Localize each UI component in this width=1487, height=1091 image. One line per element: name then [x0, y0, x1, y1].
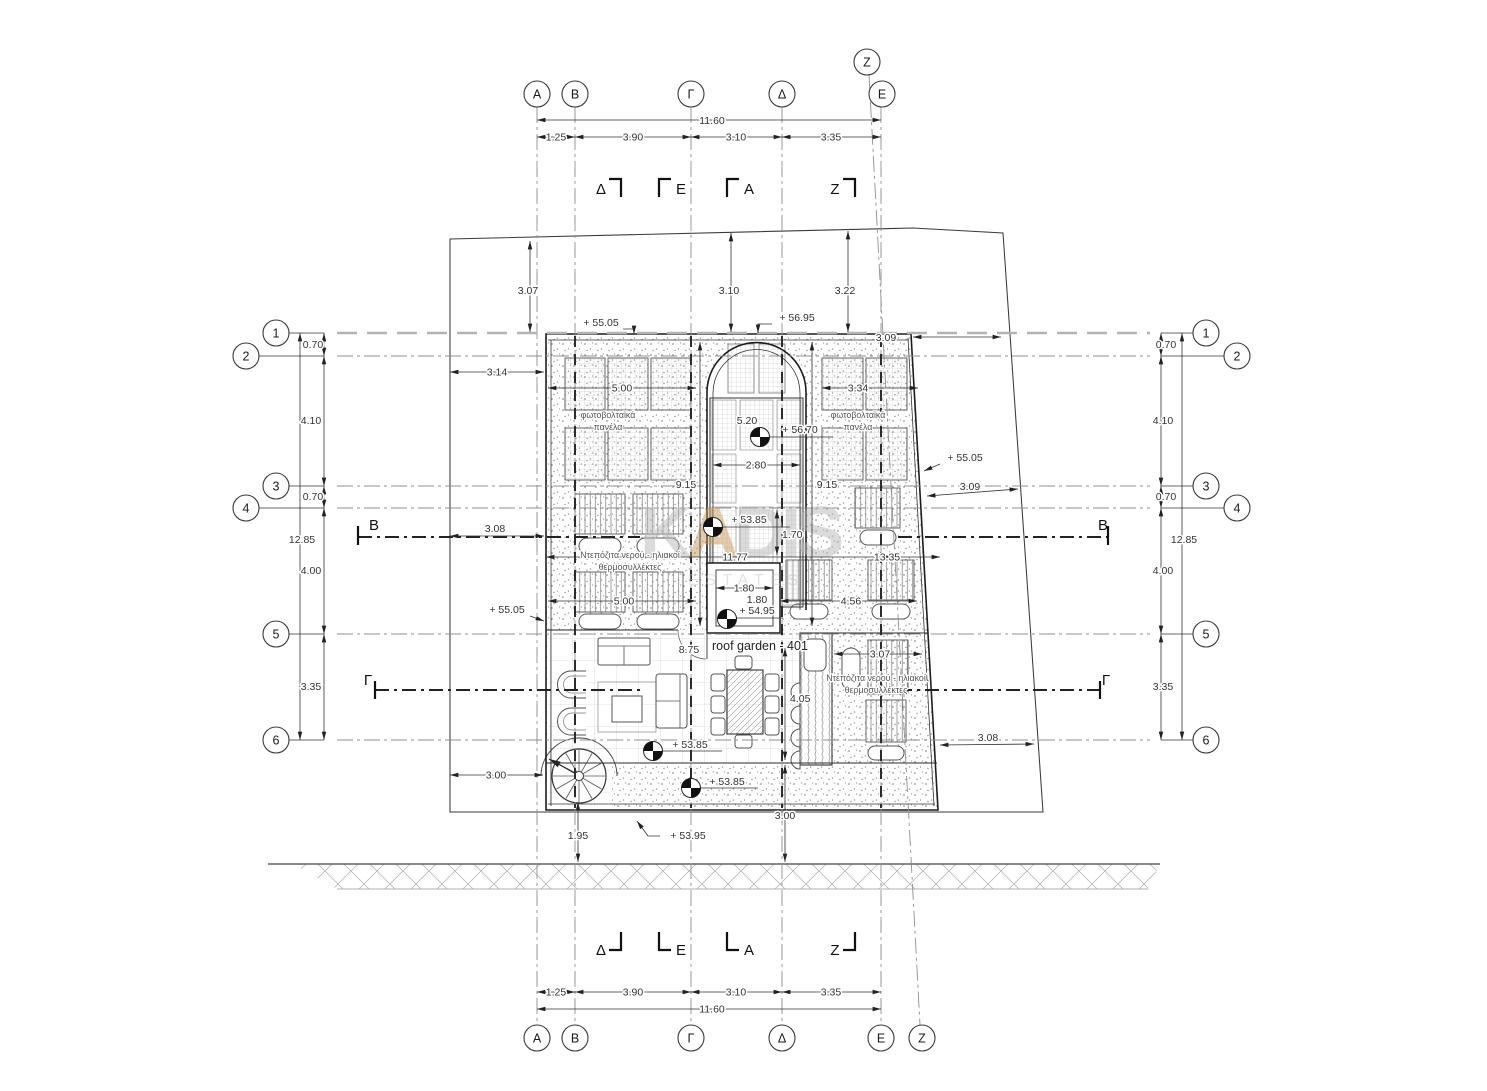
svg-text:Β: Β — [571, 1032, 579, 1046]
svg-text:5.20: 5.20 — [737, 415, 758, 427]
svg-text:2: 2 — [1234, 350, 1241, 364]
dim-bottom-segments: 1.25 3.90 3.10 3.35 — [537, 987, 881, 999]
svg-text:Ζ: Ζ — [830, 942, 839, 959]
level-marker-icon — [682, 779, 701, 798]
svg-text:+ 55.05: + 55.05 — [583, 317, 618, 329]
svg-text:+ 53.85: + 53.85 — [709, 776, 744, 788]
svg-text:3: 3 — [1203, 480, 1210, 494]
svg-text:3.10: 3.10 — [719, 285, 740, 297]
svg-text:13.35: 13.35 — [874, 552, 900, 564]
svg-text:3.35: 3.35 — [1153, 681, 1174, 693]
svg-text:+ 53.95: + 53.95 — [670, 830, 705, 842]
svg-text:πανέλα: πανέλα — [844, 422, 873, 432]
svg-text:4.10: 4.10 — [301, 415, 322, 427]
svg-text:+ 56.95: + 56.95 — [779, 312, 814, 324]
svg-text:1.25: 1.25 — [546, 987, 567, 999]
level-marker-icon — [704, 518, 723, 537]
tanks-label-right: Ντεπόζιτα νερού - ηλιακοί — [826, 673, 926, 683]
svg-text:11.60: 11.60 — [699, 115, 725, 127]
svg-text:2: 2 — [243, 350, 250, 364]
svg-text:5.00: 5.00 — [614, 596, 635, 608]
dim-top-total: 11.60 — [537, 115, 881, 127]
svg-text:4.05: 4.05 — [790, 693, 811, 705]
svg-text:Γ: Γ — [364, 672, 372, 689]
dim-right-chain: 0.70 4.10 0.70 4.00 3.35 12.85 — [1153, 333, 1198, 740]
svg-text:4.00: 4.00 — [301, 565, 322, 577]
svg-text:πανέλα: πανέλα — [594, 422, 623, 432]
svg-text:1: 1 — [1203, 327, 1210, 341]
svg-text:Ε: Ε — [676, 181, 686, 198]
svg-text:3.07: 3.07 — [518, 285, 539, 297]
svg-text:3.00: 3.00 — [775, 810, 796, 822]
svg-text:0.70: 0.70 — [303, 339, 324, 351]
svg-text:2.80: 2.80 — [746, 460, 767, 472]
level-marker-icon — [718, 610, 737, 629]
svg-text:+ 56.70: + 56.70 — [782, 424, 817, 436]
svg-text:1.80: 1.80 — [734, 583, 755, 595]
svg-text:3.08: 3.08 — [485, 523, 506, 535]
svg-text:Γ: Γ — [688, 1032, 695, 1046]
svg-text:Δ: Δ — [778, 88, 786, 102]
svg-text:9.15: 9.15 — [676, 479, 697, 491]
svg-text:1.70: 1.70 — [782, 529, 803, 541]
svg-text:0.70: 0.70 — [1156, 491, 1177, 503]
tanks-label-left: Ντεπόζιτα νερού - ηλιακοί — [580, 550, 680, 560]
svg-text:3.22: 3.22 — [835, 285, 856, 297]
svg-text:3.35: 3.35 — [301, 681, 322, 693]
svg-text:3.10: 3.10 — [726, 132, 747, 144]
svg-text:3.35: 3.35 — [821, 987, 842, 999]
svg-text:1.95: 1.95 — [568, 830, 589, 842]
pv-label-right: φωτοβολταϊκά — [831, 410, 886, 420]
svg-text:3.90: 3.90 — [623, 987, 644, 999]
svg-text:+ 55.05: + 55.05 — [489, 604, 524, 616]
roof-plan-drawing: KADIS ESTATES 11.60 1.25 3.90 3.10 3.35 … — [0, 0, 1487, 1091]
svg-text:3.09: 3.09 — [876, 332, 897, 344]
floor-plan-canvas: KADIS ESTATES 11.60 1.25 3.90 3.10 3.35 … — [0, 0, 1487, 1091]
level-marker-icon — [644, 742, 663, 761]
svg-text:Δ: Δ — [778, 1032, 786, 1046]
svg-text:Δ: Δ — [596, 942, 606, 959]
svg-text:3.14: 3.14 — [487, 367, 508, 379]
svg-text:Β: Β — [571, 88, 579, 102]
svg-text:Ζ: Ζ — [918, 1032, 926, 1046]
svg-text:+ 53.85: + 53.85 — [731, 514, 766, 526]
ground-hatch-band — [268, 864, 1160, 889]
svg-text:4.56: 4.56 — [841, 596, 862, 608]
armchair — [558, 671, 587, 698]
svg-text:4: 4 — [1234, 502, 1241, 516]
svg-text:Α: Α — [533, 88, 542, 102]
svg-text:1: 1 — [273, 327, 280, 341]
svg-text:Ε: Ε — [676, 942, 686, 959]
svg-text:5: 5 — [1203, 628, 1210, 642]
svg-text:6: 6 — [1203, 734, 1210, 748]
svg-text:9.15: 9.15 — [817, 479, 838, 491]
dim-bottom-total: 11.60 — [537, 1004, 881, 1016]
armchair — [558, 708, 587, 735]
svg-text:3: 3 — [273, 480, 280, 494]
ground-hatch — [293, 864, 1160, 889]
svg-text:4: 4 — [243, 502, 250, 516]
svg-text:Α: Α — [744, 181, 754, 198]
svg-text:5.00: 5.00 — [612, 383, 633, 395]
coffee-table — [612, 696, 642, 722]
dim-left-offsets: 3.14 3.08 3.00 — [450, 367, 544, 782]
svg-text:3.90: 3.90 — [623, 132, 644, 144]
svg-text:θερμοσυλλέκτες: θερμοσυλλέκτες — [599, 562, 662, 572]
svg-text:Β: Β — [1098, 517, 1108, 534]
room-label: roof garden - 401 — [712, 639, 808, 653]
svg-text:3.34: 3.34 — [848, 383, 869, 395]
svg-text:Ε: Ε — [878, 88, 886, 102]
svg-text:1.25: 1.25 — [546, 132, 567, 144]
svg-text:5: 5 — [273, 628, 280, 642]
grid-bubbles-top: Α Β Γ Δ Ε Ζ — [524, 49, 895, 107]
svg-text:0.70: 0.70 — [303, 491, 324, 503]
svg-text:6: 6 — [273, 734, 280, 748]
pv-label-left: φωτοβολταϊκά — [581, 410, 636, 420]
svg-text:4.10: 4.10 — [1153, 415, 1174, 427]
svg-text:Α: Α — [533, 1032, 542, 1046]
svg-text:Γ: Γ — [688, 88, 695, 102]
svg-text:8.75: 8.75 — [679, 644, 700, 656]
svg-text:+ 55.05: + 55.05 — [947, 452, 982, 464]
svg-text:11.77: 11.77 — [722, 552, 748, 564]
svg-text:12.85: 12.85 — [1171, 534, 1197, 546]
grid-bubbles-bottom: Α Β Γ Δ Ε Ζ — [524, 1025, 935, 1051]
svg-text:+ 54.95: + 54.95 — [739, 605, 774, 617]
dim-top-segments: 1.25 3.90 3.10 3.35 — [537, 132, 881, 144]
svg-text:11.60: 11.60 — [699, 1004, 725, 1016]
svg-text:Γ: Γ — [1102, 672, 1110, 689]
svg-text:Β: Β — [369, 517, 379, 534]
dim-left-chain: 0.70 4.10 0.70 4.00 3.35 12.85 — [289, 333, 324, 740]
svg-text:3.07: 3.07 — [870, 649, 891, 661]
svg-text:4.00: 4.00 — [1153, 565, 1174, 577]
dining-table — [727, 670, 763, 734]
level-marker-icon — [751, 428, 770, 447]
svg-text:3.08: 3.08 — [978, 732, 999, 744]
svg-text:Ζ: Ζ — [863, 56, 871, 70]
svg-text:Α: Α — [744, 942, 754, 959]
svg-text:12.85: 12.85 — [289, 534, 315, 546]
svg-text:Δ: Δ — [596, 181, 606, 198]
svg-text:3.10: 3.10 — [726, 987, 747, 999]
svg-text:3.00: 3.00 — [486, 770, 507, 782]
svg-text:+ 53.85: + 53.85 — [672, 739, 707, 751]
svg-text:θερμοσυλλέκτες: θερμοσυλλέκτες — [845, 685, 908, 695]
svg-text:3.35: 3.35 — [821, 132, 842, 144]
svg-text:3.09: 3.09 — [960, 481, 981, 493]
svg-text:0.70: 0.70 — [1156, 339, 1177, 351]
svg-text:Ζ: Ζ — [830, 181, 839, 198]
svg-text:Ε: Ε — [877, 1032, 885, 1046]
